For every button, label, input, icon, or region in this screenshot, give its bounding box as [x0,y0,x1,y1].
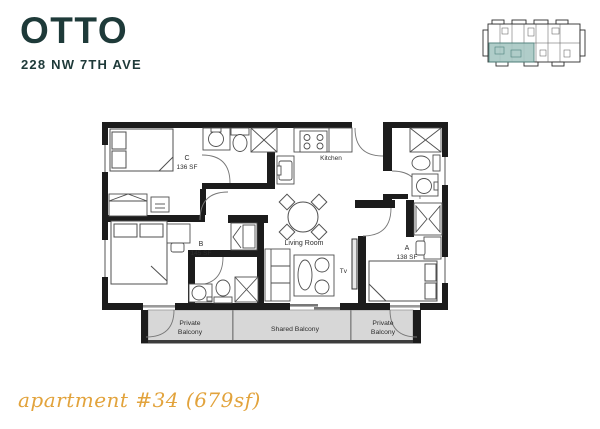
shower-b-icon [235,277,258,302]
room-b-label: B [199,241,204,248]
balcony-left-label-line2: Balcony [178,329,203,336]
balcony-left-label-line1: Private [179,320,200,327]
toilet-a-icon [412,155,440,171]
room-a-label: A [405,245,410,252]
room-c-label: C [184,155,189,162]
shower-c-icon [251,128,277,152]
tv-label: Tv [340,268,348,275]
dining-table-icon [279,194,327,240]
dresser-icon [109,194,147,216]
closet-a-icon [414,203,442,235]
bed-a-icon [369,261,437,301]
desk-a-icon [416,237,441,259]
sink-c-icon [203,128,230,150]
bath-c-door-arc [202,155,230,183]
closet-b-icon [231,223,257,250]
room-c-area: 136 SF [177,164,198,171]
nightstand-icon [151,197,169,212]
apartment-caption: apartment #34 (679sf) [18,388,261,412]
stove-icon [300,131,327,152]
bath-b-door-arc [195,257,223,285]
toilet-b-icon [214,280,232,303]
room-a-area: 138 SF [397,254,418,261]
room-a-door-arc [363,208,391,236]
sink-b-icon [189,284,212,302]
bed-c-icon [110,129,173,171]
sink-a-icon [412,174,438,196]
shared-balcony-label: Shared Balcony [271,326,320,333]
shower-a-icon [410,128,441,152]
desk-b-icon [167,224,190,252]
kitchen-label: Kitchen [320,155,342,162]
room-b-area: 145 SF [191,250,212,257]
bed-b-icon [111,221,167,284]
coffee-table-icon [294,255,334,296]
floor-plan: C 136 SF Kitchen B 145 SF Living Room Tv… [0,0,600,429]
kitchen-sink-icon [277,156,294,184]
toilet-c-icon [231,128,249,152]
entry-door-arc [355,128,383,156]
tv-icon [352,239,357,289]
balcony-right-label-line2: Balcony [371,329,396,336]
living-room-label: Living Room [285,240,324,247]
sofa-icon [265,249,290,301]
balcony-right-label-line1: Private [372,320,393,327]
